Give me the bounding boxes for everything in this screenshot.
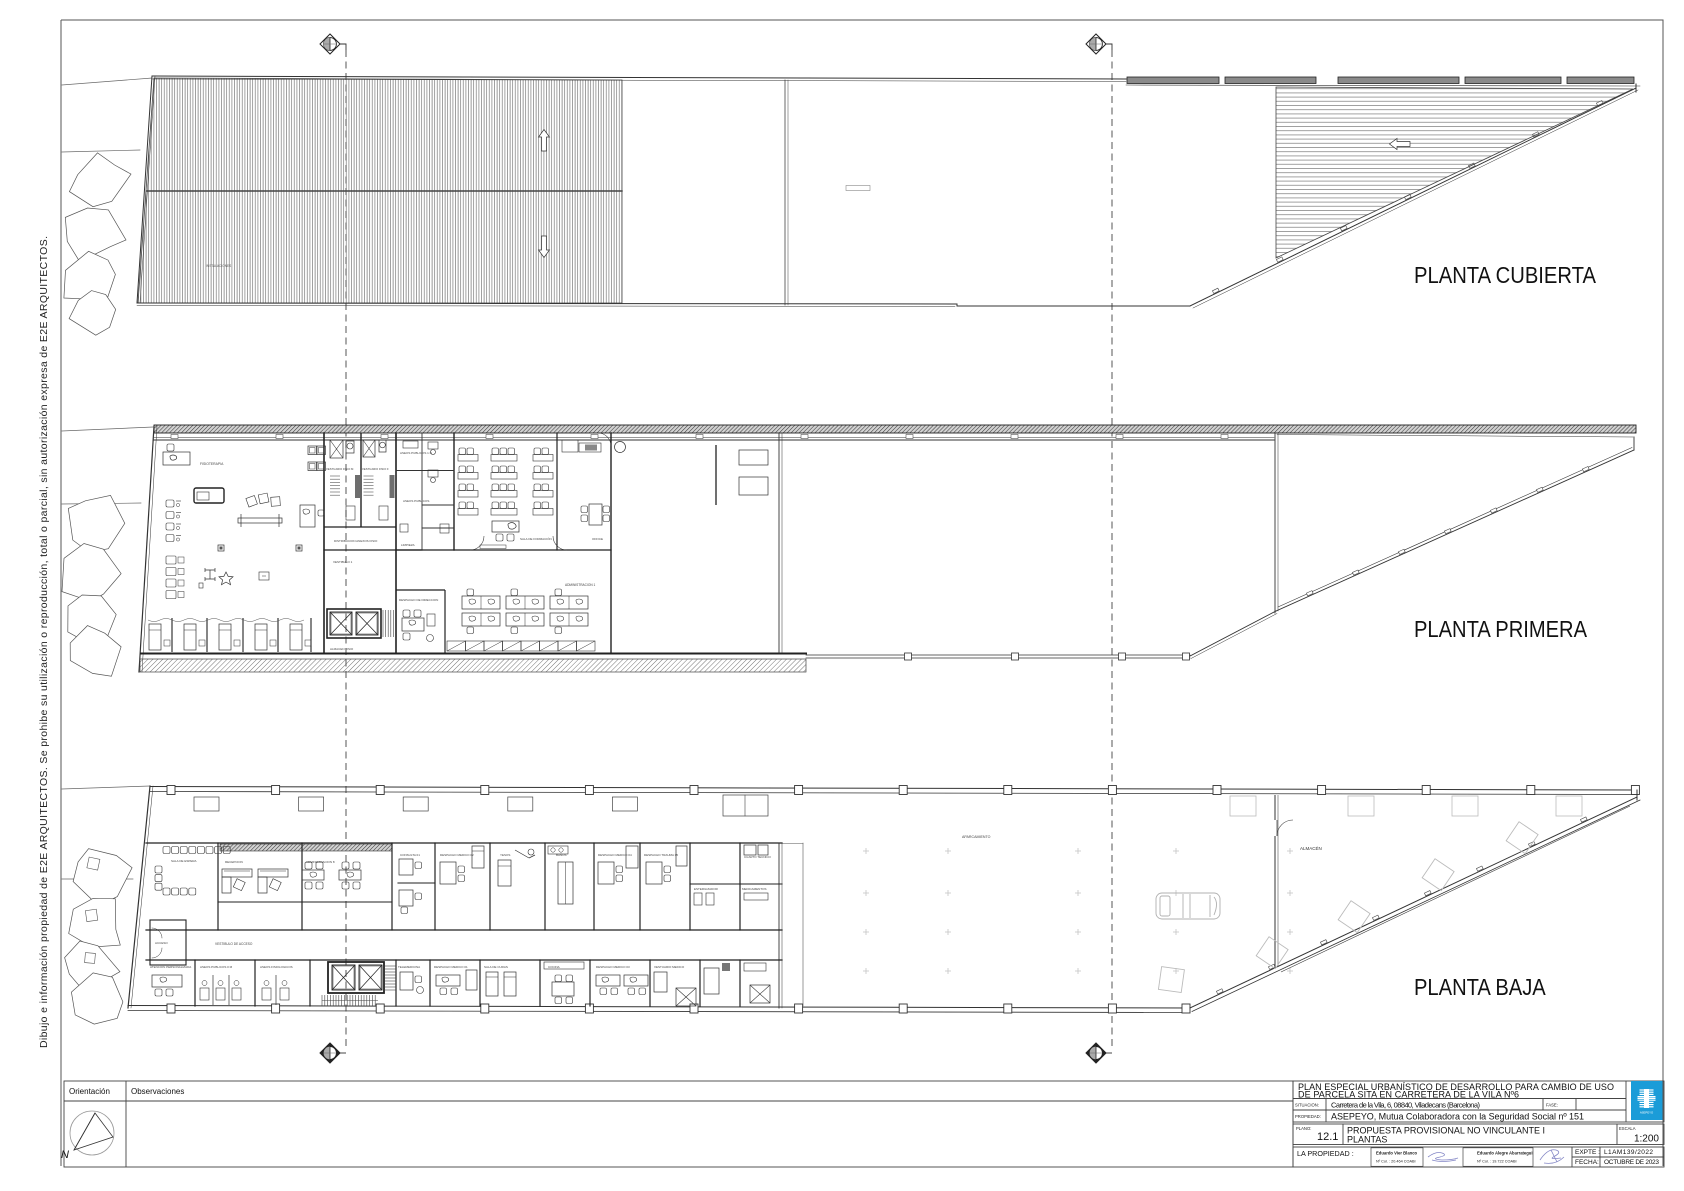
svg-text:1:200: 1:200 bbox=[1634, 1134, 1659, 1145]
svg-text:Orientación: Orientación bbox=[69, 1087, 110, 1096]
svg-text:VESTUARIO FISIO M: VESTUARIO FISIO M bbox=[326, 467, 354, 471]
svg-text:ASEPEYO: ASEPEYO bbox=[1640, 1111, 1654, 1115]
svg-text:OFFICE: OFFICE bbox=[592, 537, 603, 541]
svg-text:INSTALACIONES: INSTALACIONES bbox=[206, 264, 231, 268]
svg-text:YESOS: YESOS bbox=[500, 853, 510, 857]
svg-text:PROPIEDAD:: PROPIEDAD: bbox=[1295, 1114, 1321, 1119]
svg-text:SALA DE ESPERA: SALA DE ESPERA bbox=[171, 859, 197, 863]
svg-text:VESTIBULO 1: VESTIBULO 1 bbox=[333, 560, 353, 564]
svg-text:DESPACHO MEDICO 04: DESPACHO MEDICO 04 bbox=[598, 853, 632, 857]
svg-text:VESTUARIO FISIO F: VESTUARIO FISIO F bbox=[362, 467, 389, 471]
svg-text:CONSULTA 01: CONSULTA 01 bbox=[400, 853, 420, 857]
svg-text:MEDICAMENTOS: MEDICAMENTOS bbox=[742, 887, 766, 891]
svg-text:CUARTO TECNICO: CUARTO TECNICO bbox=[744, 855, 772, 859]
svg-text:ASEOS PUBLICOS 1 H: ASEOS PUBLICOS 1 H bbox=[400, 451, 432, 455]
svg-text:TELEMEDICINA: TELEMEDICINA bbox=[398, 965, 420, 969]
svg-text:DESPACHO MEDICO 02: DESPACHO MEDICO 02 bbox=[440, 853, 474, 857]
svg-text:ATENCION PERSONALIZADA: ATENCION PERSONALIZADA bbox=[150, 965, 191, 969]
svg-text:Eduardo Vier Blanco: Eduardo Vier Blanco bbox=[1376, 1151, 1418, 1156]
svg-text:FECHA:: FECHA: bbox=[1575, 1159, 1599, 1166]
svg-text:LA PROPIEDAD :: LA PROPIEDAD : bbox=[1297, 1149, 1354, 1158]
svg-text:PLANTA PRIMERA: PLANTA PRIMERA bbox=[1414, 616, 1587, 643]
svg-text:RECEPCION: RECEPCION bbox=[225, 860, 243, 864]
svg-text:DESPACHO TRAUMA 05: DESPACHO TRAUMA 05 bbox=[644, 853, 678, 857]
svg-text:PLANTA CUBIERTA: PLANTA CUBIERTA bbox=[1414, 262, 1596, 289]
svg-text:ESTERILIZADOR: ESTERILIZADOR bbox=[694, 887, 719, 891]
svg-text:FISIOTERAPIA: FISIOTERAPIA bbox=[200, 462, 224, 466]
svg-text:APARCAMIENTO: APARCAMIENTO bbox=[962, 835, 991, 839]
svg-text:LIMPIEZA: LIMPIEZA bbox=[401, 543, 415, 547]
svg-text:COCINA: COCINA bbox=[548, 965, 560, 969]
svg-text:DESPACHO MEDICO 01: DESPACHO MEDICO 01 bbox=[434, 965, 468, 969]
svg-text:EXPTE :: EXPTE : bbox=[1575, 1149, 1600, 1156]
svg-text:ESCALA: ESCALA bbox=[1619, 1126, 1636, 1131]
svg-text:SALA DE FORMACIÓN: SALA DE FORMACIÓN bbox=[520, 536, 552, 541]
svg-text:DESPACHO DE DIRECCION: DESPACHO DE DIRECCION bbox=[399, 598, 438, 602]
svg-text:FASE:: FASE: bbox=[1546, 1103, 1558, 1108]
svg-text:DISTRIBUCION ANEXOS FISIO: DISTRIBUCION ANEXOS FISIO bbox=[334, 539, 378, 543]
svg-text:ALMACÉN: ALMACÉN bbox=[1300, 845, 1322, 851]
svg-text:VESTUARIO MEDICO: VESTUARIO MEDICO bbox=[654, 965, 685, 969]
svg-text:OCTUBRE DE 2023: OCTUBRE DE 2023 bbox=[1604, 1159, 1659, 1166]
svg-text:N: N bbox=[61, 1149, 69, 1161]
svg-text:SITUACION:: SITUACION: bbox=[1295, 1103, 1319, 1108]
svg-text:ALMACEN FISIO: ALMACEN FISIO bbox=[330, 647, 354, 651]
svg-text:ASEOS PUBLICOS: ASEOS PUBLICOS bbox=[403, 499, 429, 503]
svg-text:SALA DE CURAS: SALA DE CURAS bbox=[484, 965, 508, 969]
svg-text:L1AM139/2022: L1AM139/2022 bbox=[1604, 1149, 1653, 1156]
svg-text:Nº Col. : 20.464 COABI: Nº Col. : 20.464 COABI bbox=[1376, 1160, 1416, 1164]
svg-text:ACCESO: ACCESO bbox=[155, 941, 168, 945]
svg-text:PLANO:: PLANO: bbox=[1296, 1126, 1311, 1131]
svg-text:DESPACHO MEDICO 03: DESPACHO MEDICO 03 bbox=[596, 965, 630, 969]
svg-text:ASEOS FISIOLOGICOS: ASEOS FISIOLOGICOS bbox=[260, 965, 293, 969]
svg-text:DE PARCELA SITA EN CARRETERA D: DE PARCELA SITA EN CARRETERA DE LA VILA … bbox=[1298, 1090, 1519, 1100]
svg-text:Nº Col. : 19.722 COABI: Nº Col. : 19.722 COABI bbox=[1477, 1160, 1517, 1164]
svg-text:PLANTAS: PLANTAS bbox=[1347, 1135, 1387, 1145]
svg-text:Observaciones: Observaciones bbox=[131, 1087, 184, 1096]
svg-text:ASEPEYO, Mutua Colaboradora co: ASEPEYO, Mutua Colaboradora con la Segur… bbox=[1331, 1112, 1584, 1122]
svg-text:Eduardo Alegre Abarrategui: Eduardo Alegre Abarrategui bbox=[1477, 1151, 1533, 1156]
svg-text:ASEOS PUBLICOS 0 M: ASEOS PUBLICOS 0 M bbox=[200, 965, 233, 969]
svg-text:BAÑOS: BAÑOS bbox=[556, 852, 567, 857]
svg-text:Dibujo e información propiedad: Dibujo e información propiedad de E2E AR… bbox=[38, 236, 50, 1048]
svg-text:ADMINISTRACION 1: ADMINISTRACION 1 bbox=[565, 583, 596, 587]
svg-text:12.1: 12.1 bbox=[1317, 1131, 1338, 1143]
svg-text:PLANTA BAJA: PLANTA BAJA bbox=[1414, 974, 1546, 1001]
svg-text:VESTIBULO DE ACCESO: VESTIBULO DE ACCESO bbox=[215, 942, 253, 946]
svg-text:Carretera de la Vila, 6, 08840: Carretera de la Vila, 6, 08840, Viladeca… bbox=[1331, 1101, 1481, 1110]
